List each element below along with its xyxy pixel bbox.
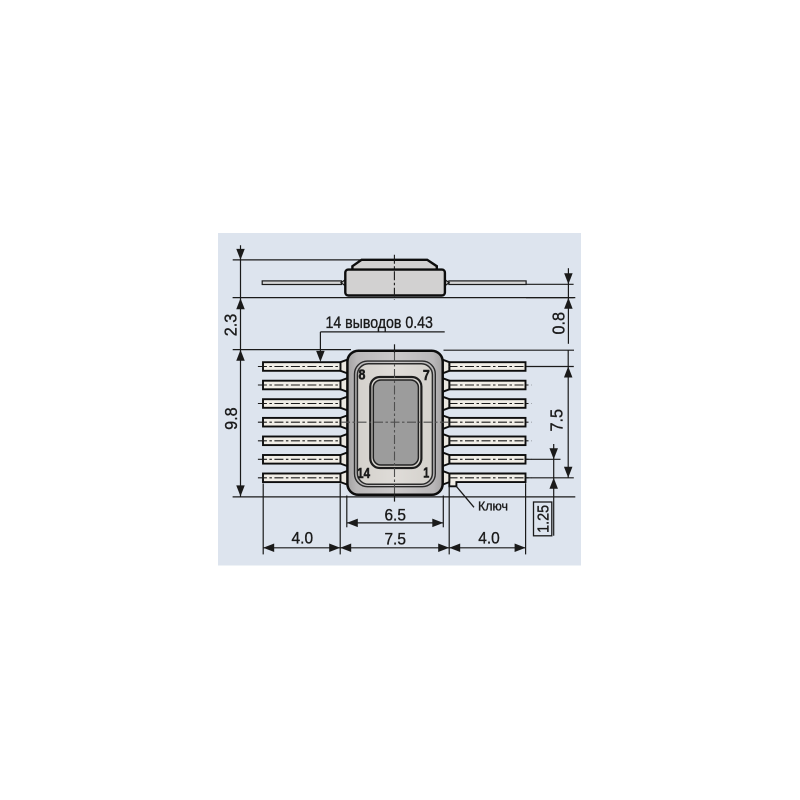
svg-text:8: 8	[359, 368, 366, 384]
svg-text:1.25: 1.25	[535, 505, 552, 533]
svg-text:4.0: 4.0	[478, 529, 500, 548]
svg-text:4.0: 4.0	[292, 529, 314, 548]
svg-text:0.8: 0.8	[548, 312, 568, 335]
svg-text:7.5: 7.5	[547, 409, 567, 432]
svg-text:1: 1	[423, 466, 429, 482]
svg-text:6.5: 6.5	[384, 505, 406, 524]
svg-text:14 выводов 0.43: 14 выводов 0.43	[325, 314, 433, 332]
svg-text:9.8: 9.8	[221, 407, 241, 430]
svg-text:2.3: 2.3	[221, 314, 241, 337]
svg-text:7.5: 7.5	[384, 530, 406, 549]
svg-text:7: 7	[423, 368, 430, 384]
svg-text:Ключ: Ключ	[478, 498, 508, 513]
svg-text:14: 14	[357, 466, 370, 482]
